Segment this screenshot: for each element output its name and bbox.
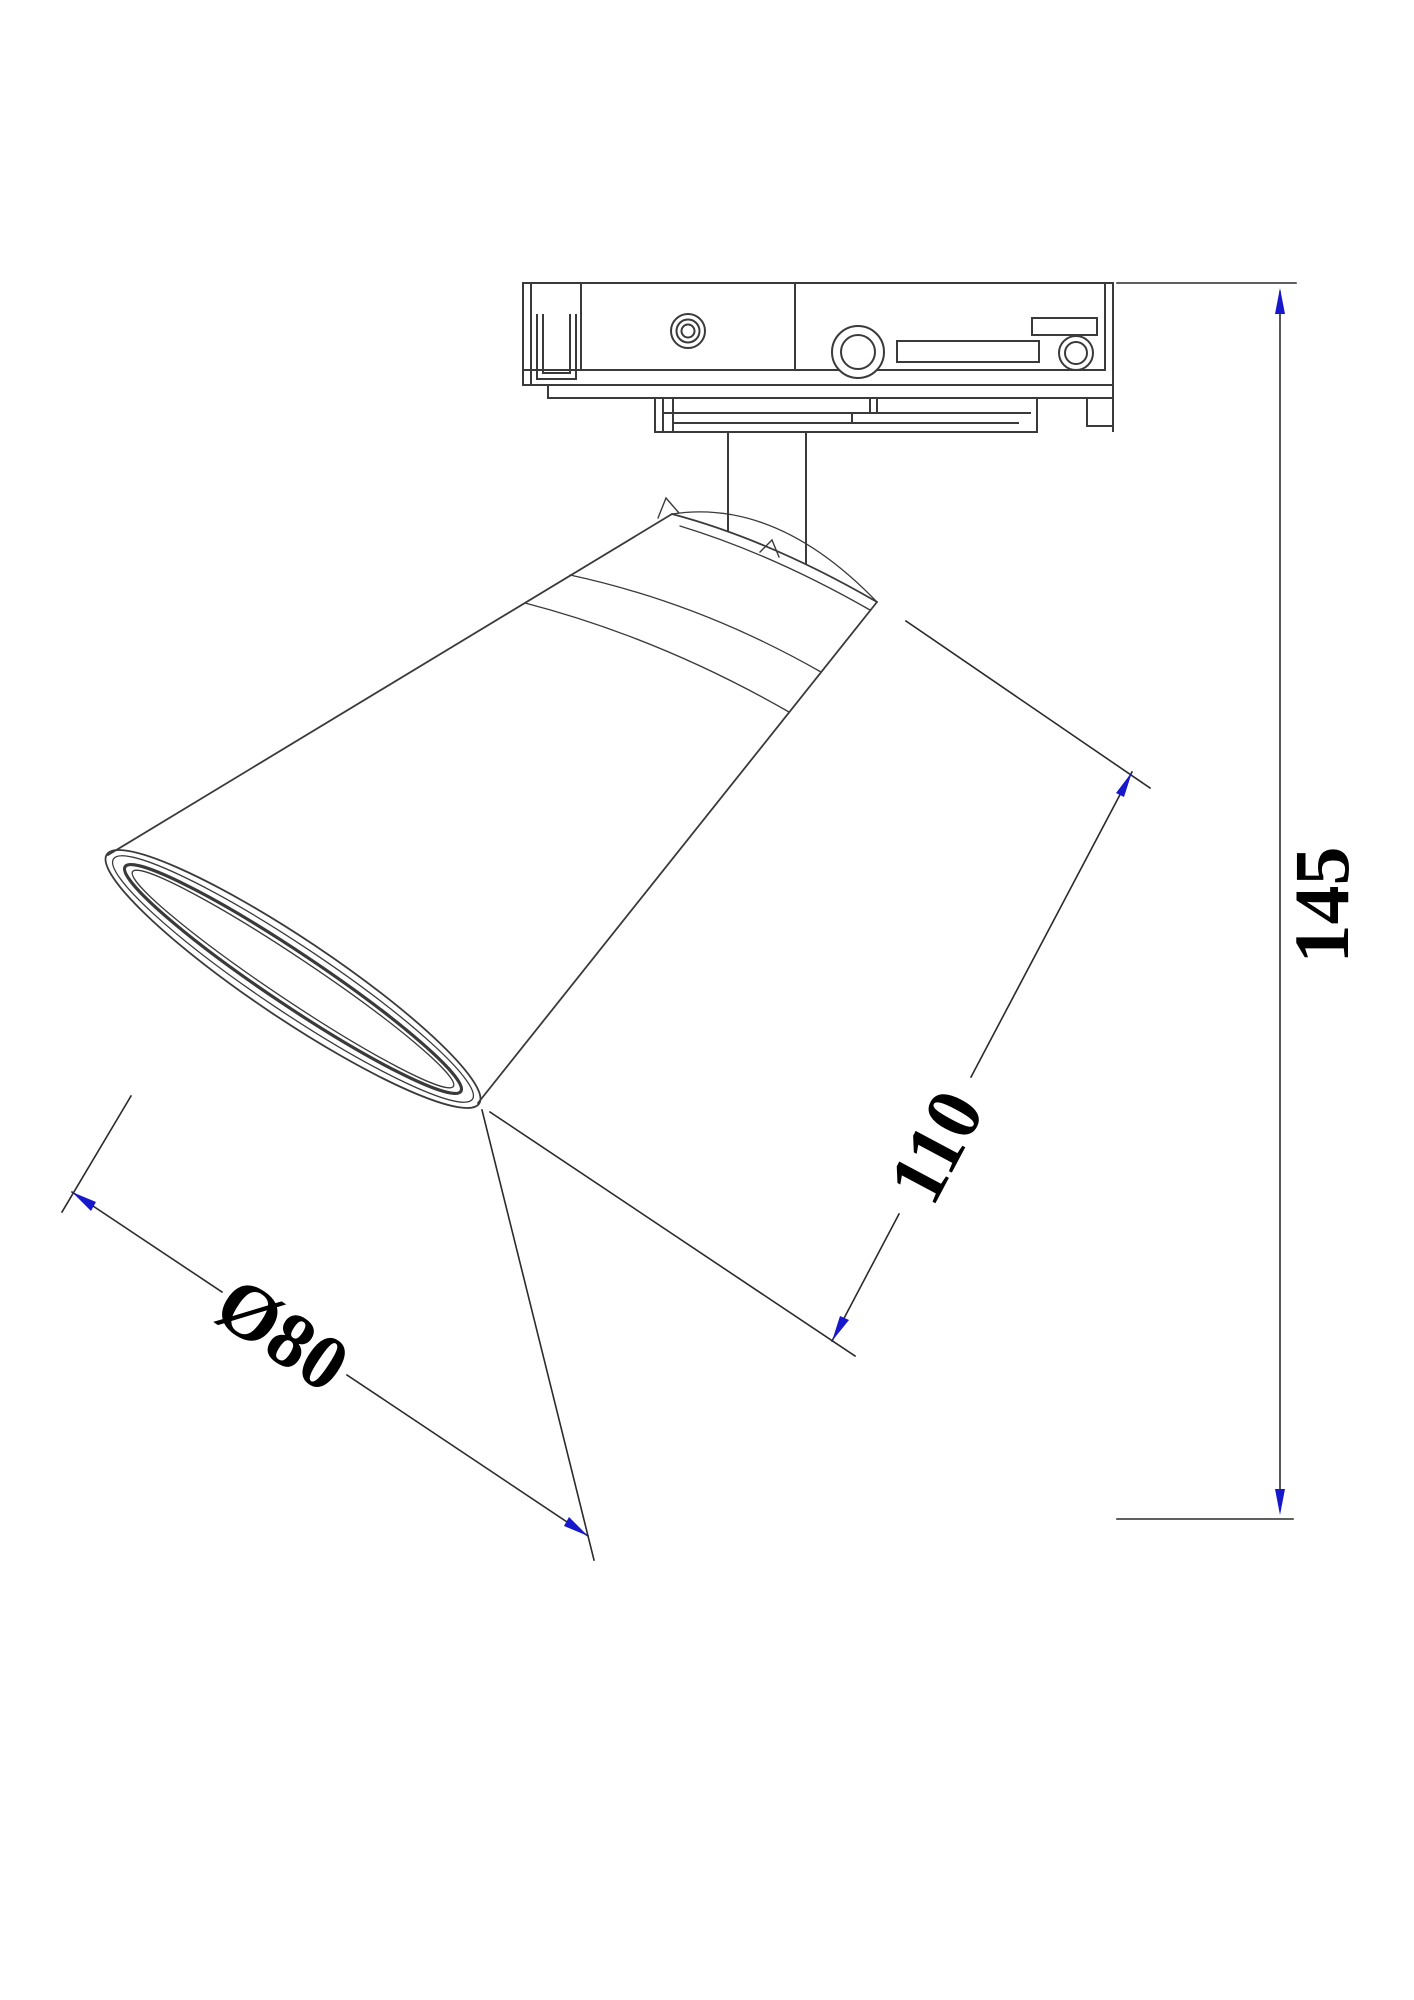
arrowhead-upper-right [1116, 772, 1132, 797]
arrowhead-upper-left [72, 1192, 96, 1211]
extension-line-mouth-left [62, 1096, 131, 1212]
track-adapter [523, 283, 1113, 432]
adapter-screw-right-inner [1065, 342, 1087, 364]
mounting-stem [728, 432, 806, 564]
dimension-line-110-upper [971, 772, 1132, 1077]
adapter-small-window [1032, 318, 1097, 335]
shade-ring-groove-2 [525, 603, 789, 712]
dimension-line-80-lower [347, 1375, 588, 1536]
extension-line-neck [906, 621, 1150, 788]
shade-neck-rim-far [672, 512, 877, 602]
adapter-long-window [897, 341, 1039, 362]
shade-neck-rim-inner [680, 526, 870, 610]
adapter-u-slot-inner [543, 315, 570, 373]
dimension-145-lines [1117, 283, 1296, 1519]
shade-mouth-rim-4 [121, 854, 465, 1104]
shade-ring-groove-1 [570, 575, 821, 672]
adapter-screw-center-inner [682, 325, 695, 338]
technical-drawing-canvas: 145 110 [0, 0, 1414, 2000]
lamp-shade [85, 498, 877, 1137]
shade-mouth [85, 821, 502, 1137]
dimension-line-80-upper [72, 1192, 222, 1292]
arrowhead-up [1275, 288, 1285, 314]
drawing-sheet: 145 110 [0, 0, 1414, 2000]
shade-mouth-inner-lip [111, 845, 476, 1113]
shade-right-edge [478, 602, 877, 1103]
shade-left-edge [108, 514, 672, 855]
dimension-overall-height: 145 [1117, 283, 1365, 1519]
dimension-label-diameter: Ø80 [201, 1259, 365, 1408]
mount-block-right-tab [1087, 398, 1113, 426]
dimension-label-length: 110 [871, 1076, 1001, 1216]
extension-line-mouth-right [482, 1110, 594, 1560]
dimension-shade-length: 110 [490, 621, 1150, 1356]
dimension-145-text: 145 [1278, 847, 1365, 964]
dimension-shade-diameter: Ø80 [62, 1096, 594, 1560]
adapter-knob-inner [841, 335, 875, 369]
arrowhead-down [1275, 1489, 1285, 1515]
extension-line-mouth-corner [490, 1112, 855, 1356]
arrowhead-lower-left [832, 1316, 849, 1341]
dimension-110-text: 110 [871, 1076, 1001, 1216]
adapter-fasteners [671, 314, 1093, 378]
dimension-label-height: 145 [1278, 847, 1365, 964]
dimension-80-text: Ø80 [201, 1259, 365, 1408]
dimension-110-lines [490, 621, 1150, 1356]
